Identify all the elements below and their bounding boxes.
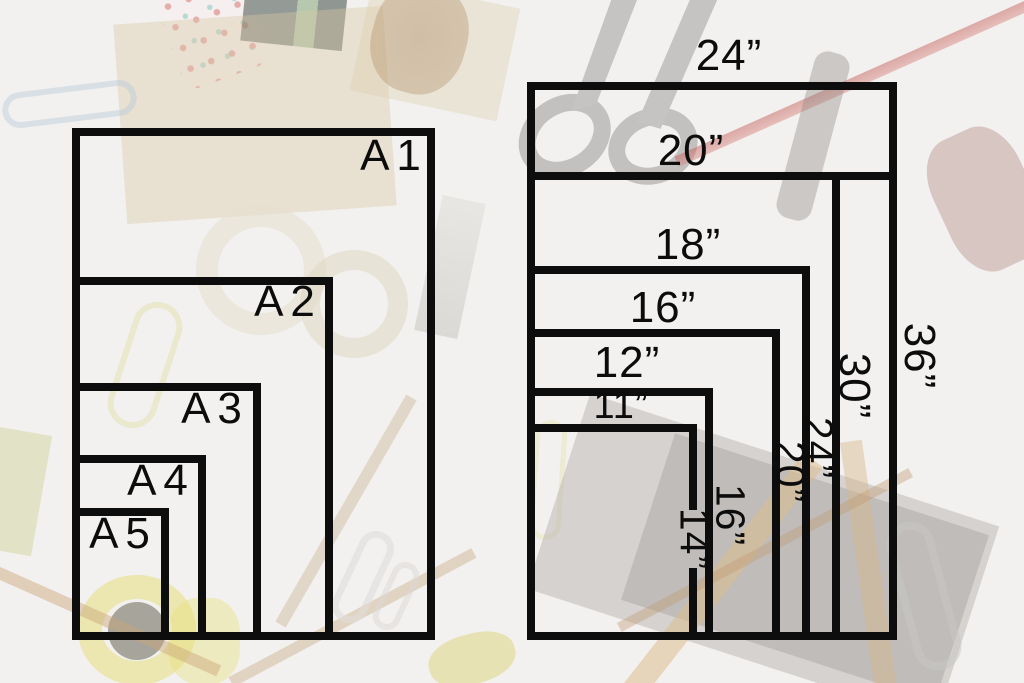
bg-right-brush: [912, 115, 1024, 284]
label-a5: A5: [89, 512, 157, 556]
width-label-11in: 11”: [593, 387, 648, 425]
height-label-20in: 20”: [770, 441, 811, 503]
height-label-30in: 30”: [832, 353, 876, 420]
bg-blue-paperclip: [0, 78, 138, 130]
label-a3: A3: [181, 387, 249, 431]
label-a4: A4: [127, 459, 195, 503]
width-label-12in: 12”: [594, 341, 661, 385]
paper-size-comparison-diagram: A1 A2 A3 A4 A5 24” 20” 18” 16” 12” 11” 3…: [0, 0, 1024, 683]
label-a2: A2: [254, 280, 322, 324]
right-edge-11x14-lower: [689, 568, 697, 640]
width-label-16in: 16”: [630, 286, 697, 330]
bg-yellow-brush-tip: [423, 623, 521, 683]
label-a1: A1: [360, 134, 428, 178]
width-label-20in: 20”: [658, 129, 725, 173]
height-label-36in: 36”: [897, 323, 941, 390]
width-label-18in: 18”: [655, 223, 722, 267]
bg-yellow-tube: [0, 426, 52, 557]
width-label-24in: 24”: [696, 34, 763, 78]
line-extension-20in: [832, 172, 897, 180]
height-label-14in: 14”: [674, 508, 715, 570]
right-edge-11x14-upper: [689, 424, 697, 510]
